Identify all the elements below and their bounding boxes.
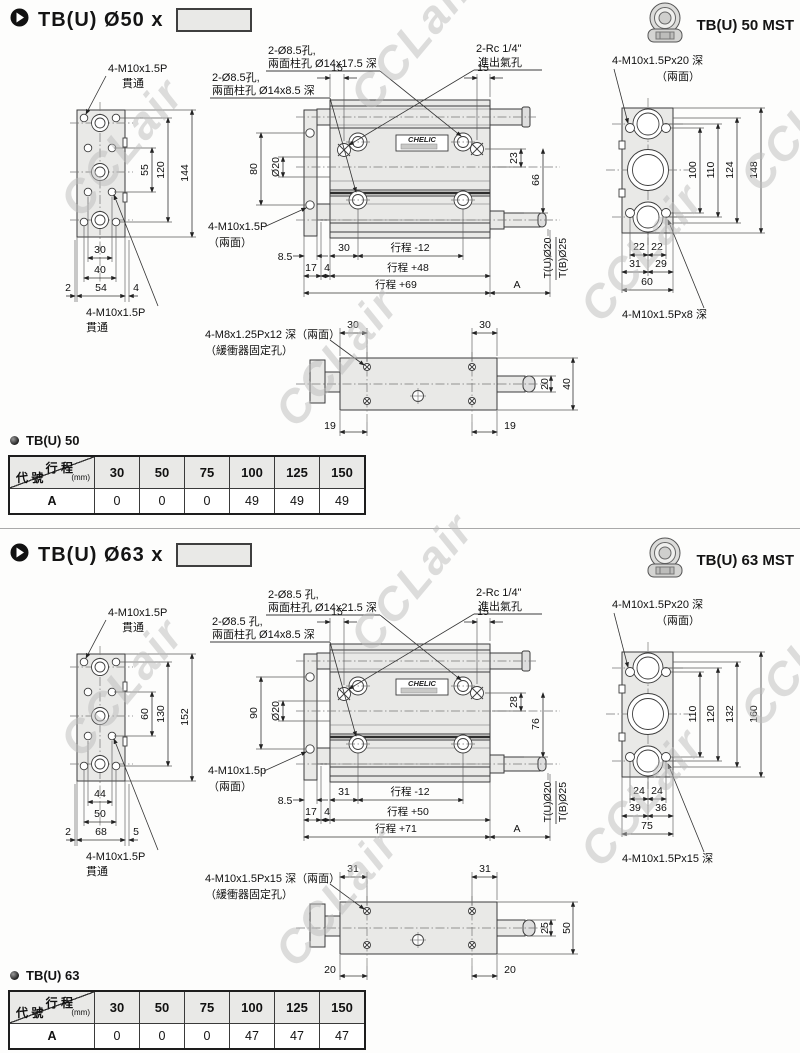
- dim-label: 36: [655, 802, 667, 814]
- dim-label: 50: [94, 808, 106, 820]
- mst-label: TB(U) 63 MST: [697, 552, 795, 569]
- dim-label: 100: [687, 161, 699, 179]
- thread-callout: （緩衝器固定孔）: [205, 343, 293, 357]
- dim-label: 31: [479, 863, 491, 875]
- table-cell: 0: [185, 489, 230, 515]
- hole-callout: 2-Ø8.5孔,: [212, 71, 260, 84]
- rod-diameter-label: T(U)Ø20: [542, 237, 554, 278]
- technical-drawing: 55 120 144 30 40 2 54 4 4-M10x1.5P: [0, 40, 800, 440]
- dim-label: 23: [508, 152, 520, 164]
- bottom-view: 31 31 4-M10x1.5Px15 深（兩面） （緩衝器固定孔） 25 50…: [205, 863, 578, 980]
- thread-callout: 4-M10x1.5Px15 深: [622, 852, 713, 865]
- dim-label: 4: [324, 806, 330, 818]
- product-photo-icon: [641, 537, 689, 584]
- brand-nameplate: CHELIC: [408, 135, 437, 144]
- dim-label: 130: [155, 705, 167, 723]
- dim-label: 行程 +69: [375, 278, 417, 291]
- table-cell: 47: [230, 1024, 275, 1050]
- dim-label: Ø20: [270, 157, 282, 177]
- dim-label: 152: [179, 708, 191, 726]
- stroke-placeholder-box: [176, 543, 252, 567]
- dim-label: 40: [94, 264, 106, 276]
- dim-label: 60: [139, 708, 151, 720]
- dim-label: 22: [633, 241, 645, 253]
- thread-callout: 4-M10x1.5P: [108, 607, 167, 619]
- dim-label: 31: [347, 863, 359, 875]
- table-cell: 49: [230, 489, 275, 515]
- table-title-text: TB(U) 50: [26, 433, 79, 448]
- stroke-code-table: 行 程 (mm) 代 號 30 50 75 100 125 150 A 0 0 …: [8, 990, 366, 1050]
- dim-label: 132: [724, 705, 736, 723]
- table-cell: 49: [275, 489, 320, 515]
- stroke-column-header: 125: [275, 456, 320, 489]
- dim-label: 15: [331, 62, 343, 74]
- right-view: 100 110 124 148 4-M10x1.5Px20 深 （兩面） 22 …: [606, 54, 765, 321]
- table-cell: 49: [320, 489, 366, 515]
- dim-label: 80: [248, 163, 260, 175]
- port-callout: 2-Rc 1/4": [476, 587, 522, 599]
- thread-callout: 貫通: [86, 321, 108, 334]
- dim-label: 31: [629, 258, 641, 270]
- rod-diameter-label: T(U)Ø20: [542, 781, 554, 822]
- dim-label: 44: [94, 788, 106, 800]
- dim-label: 25: [539, 922, 551, 934]
- dim-label: 24: [651, 785, 663, 797]
- dim-label: 66: [530, 174, 542, 186]
- thread-callout: 4-M10x1.5Px20 深: [612, 598, 703, 611]
- dim-label: 54: [95, 282, 107, 294]
- dim-label: 19: [324, 420, 336, 432]
- dim-label: 19: [504, 420, 516, 432]
- table-title-text: TB(U) 63: [26, 968, 79, 983]
- header-stroke-label: 行 程: [46, 459, 73, 476]
- dim-label: 28: [508, 696, 520, 708]
- header-stroke-label: 行 程: [46, 994, 73, 1011]
- dim-label: 30: [479, 319, 491, 331]
- dim-label: 15: [477, 606, 489, 618]
- dim-label: 4: [324, 262, 330, 274]
- dim-label: 5: [133, 826, 139, 838]
- thread-callout: 4-M10x1.5P: [108, 63, 167, 75]
- dim-label: 行程 -12: [390, 785, 429, 798]
- stroke-column-header: 30: [95, 456, 140, 489]
- dim-label: 8.5: [278, 251, 293, 263]
- dim-label: 124: [724, 161, 736, 179]
- dim-label: 15: [331, 606, 343, 618]
- hole-callout: 兩面柱孔 Ø14x17.5 深: [268, 56, 377, 70]
- header-unit-label: (mm): [71, 1008, 90, 1017]
- hole-callout: 兩面柱孔 Ø14x21.5 深: [268, 600, 377, 614]
- dim-label: 120: [155, 161, 167, 179]
- section-header: TB(U) Ø63 x: [10, 543, 252, 567]
- stroke-column-header: 100: [230, 456, 275, 489]
- mst-badge: TB(U) 50 MST: [641, 2, 795, 49]
- dim-label: 20: [324, 964, 336, 976]
- table-diagonal-header: 行 程 (mm) 代 號: [9, 991, 95, 1024]
- dim-label: 20: [504, 964, 516, 976]
- dim-label: 144: [179, 164, 191, 182]
- dim-label: 24: [633, 785, 645, 797]
- table-cell: 0: [95, 1024, 140, 1050]
- dim-label: 17: [305, 262, 317, 274]
- section-title: TB(U) Ø50 x: [38, 9, 163, 32]
- catalog-page: TB(U) Ø50 x TB(U) 50 MST: [0, 0, 800, 1053]
- dim-label: 90: [248, 707, 260, 719]
- dim-label: 120: [705, 705, 717, 723]
- dim-label: 50: [561, 922, 573, 934]
- thread-callout: （兩面）: [208, 780, 252, 793]
- thread-callout: （兩面）: [656, 70, 700, 83]
- table-cell: 47: [275, 1024, 320, 1050]
- table-row: A 0 0 0 49 49 49: [9, 489, 365, 515]
- left-view: 55 120 144 30 40 2 54 4 4-M10x1.5P: [65, 63, 196, 334]
- stroke-column-header: 50: [140, 456, 185, 489]
- dim-label: 15: [477, 62, 489, 74]
- stroke-column-header: 150: [320, 456, 366, 489]
- thread-callout: 4-M10x1.5Px8 深: [622, 308, 707, 321]
- dim-label: 行程 +50: [387, 805, 429, 818]
- dim-label: 29: [655, 258, 667, 270]
- dim-label: 30: [347, 319, 359, 331]
- hole-callout: 2-Ø8.5 孔,: [212, 615, 263, 628]
- table-cell: 47: [320, 1024, 366, 1050]
- product-section: TB(U) Ø50 x TB(U) 50 MST: [0, 0, 800, 535]
- dim-label: 30: [94, 244, 106, 256]
- mst-label: TB(U) 50 MST: [697, 17, 795, 34]
- table-title: TB(U) 50: [10, 433, 79, 448]
- brand-nameplate: CHELIC: [408, 679, 437, 688]
- table-header-row: 行 程 (mm) 代 號 30 50 75 100 125 150: [9, 991, 365, 1024]
- thread-callout: 4-M10x1.5p: [208, 765, 266, 777]
- header-code-label: 代 號: [16, 469, 43, 486]
- thread-callout: 貫通: [86, 865, 108, 878]
- product-photo-icon: [641, 2, 689, 49]
- section-marker-icon: [10, 8, 29, 32]
- dim-label: 60: [641, 276, 653, 288]
- dim-label: 110: [705, 161, 717, 178]
- stroke-column-header: 50: [140, 991, 185, 1024]
- dim-label: Ø20: [270, 701, 282, 721]
- dim-label: 110: [687, 705, 699, 722]
- thread-callout: 4-M10x1.5Px15 深（兩面）: [205, 872, 340, 885]
- dim-label: 4: [133, 282, 139, 294]
- dim-label: 行程 +48: [387, 261, 429, 274]
- dim-label: 17: [305, 806, 317, 818]
- section-header: TB(U) Ø50 x: [10, 8, 252, 32]
- rod-diameter-label: T(B)Ø25: [557, 238, 569, 278]
- thread-callout: （緩衝器固定孔）: [205, 887, 293, 901]
- thread-callout: （兩面）: [208, 236, 252, 249]
- stroke-column-header: 125: [275, 991, 320, 1024]
- product-section: TB(U) Ø63 x TB(U) 63 MST: [0, 535, 800, 1053]
- section-divider: [0, 528, 800, 529]
- stroke-column-header: 150: [320, 991, 366, 1024]
- bullet-icon: [10, 436, 19, 445]
- stroke-code-table: 行 程 (mm) 代 號 30 50 75 100 125 150 A 0 0 …: [8, 455, 366, 515]
- bullet-icon: [10, 971, 19, 980]
- rod-diameter-label: T(B)Ø25: [557, 782, 569, 822]
- dim-label: 160: [748, 705, 760, 723]
- dim-label: 148: [748, 161, 760, 179]
- front-view: CHELIC 2-Ø8.5 孔, 兩面柱孔 Ø14x21.5 深 2-Ø8.5 …: [208, 587, 569, 841]
- dim-label: 2: [65, 282, 71, 294]
- dim-label: 39: [629, 802, 641, 814]
- table-diagonal-header: 行 程 (mm) 代 號: [9, 456, 95, 489]
- dim-label: 行程 -12: [390, 241, 429, 254]
- thread-callout: （兩面）: [656, 614, 700, 627]
- front-view: CHELIC 2-Ø8.5孔, 兩面柱孔 Ø14x17.5 深 2-Ø8.5孔,…: [208, 43, 569, 297]
- dim-label: 40: [561, 378, 573, 390]
- dim-label: 76: [530, 718, 542, 730]
- hole-callout: 2-Ø8.5孔,: [268, 44, 316, 57]
- dim-label: 8.5: [278, 795, 293, 807]
- dim-label: 行程 +71: [375, 822, 417, 835]
- thread-callout: 4-M8x1.25Px12 深（兩面）: [205, 328, 340, 341]
- dim-label: 2: [65, 826, 71, 838]
- port-callout: 2-Rc 1/4": [476, 43, 522, 55]
- section-title: TB(U) Ø63 x: [38, 544, 163, 567]
- table-header-row: 行 程 (mm) 代 號 30 50 75 100 125 150: [9, 456, 365, 489]
- header-code-label: 代 號: [16, 1004, 43, 1021]
- dim-label: 55: [139, 164, 151, 176]
- thread-callout: 貫通: [122, 77, 144, 90]
- dim-label: 22: [651, 241, 663, 253]
- row-label: A: [9, 489, 95, 515]
- bottom-view: 30 30 4-M8x1.25Px12 深（兩面） （緩衝器固定孔） 20 40…: [205, 319, 578, 436]
- thread-callout: 4-M10x1.5P: [86, 307, 145, 319]
- section-marker-icon: [10, 543, 29, 567]
- table-cell: 0: [185, 1024, 230, 1050]
- row-label: A: [9, 1024, 95, 1050]
- thread-callout: 4-M10x1.5P: [208, 221, 267, 233]
- dim-label: 31: [338, 786, 350, 798]
- technical-drawing: 60 130 152 44 50 2 68 5 4-M10x1.5P: [0, 584, 800, 984]
- hole-callout: 2-Ø8.5 孔,: [268, 588, 319, 601]
- mst-badge: TB(U) 63 MST: [641, 537, 795, 584]
- left-view: 60 130 152 44 50 2 68 5 4-M10x1.5P: [65, 607, 196, 878]
- table-cell: 0: [140, 489, 185, 515]
- dim-label: A: [513, 823, 520, 835]
- thread-callout: 4-M10x1.5Px20 深: [612, 54, 703, 67]
- dim-label: 68: [95, 826, 107, 838]
- dim-label: 30: [338, 242, 350, 254]
- stroke-column-header: 30: [95, 991, 140, 1024]
- dim-label: 75: [641, 820, 653, 832]
- stroke-column-header: 100: [230, 991, 275, 1024]
- table-row: A 0 0 0 47 47 47: [9, 1024, 365, 1050]
- dim-label: A: [513, 279, 520, 291]
- thread-callout: 貫通: [122, 621, 144, 634]
- hole-callout: 兩面柱孔 Ø14x8.5 深: [212, 627, 315, 641]
- table-title: TB(U) 63: [10, 968, 79, 983]
- hole-callout: 兩面柱孔 Ø14x8.5 深: [212, 83, 315, 97]
- dim-label: 20: [539, 378, 551, 390]
- thread-callout: 4-M10x1.5P: [86, 851, 145, 863]
- table-cell: 0: [95, 489, 140, 515]
- stroke-column-header: 75: [185, 991, 230, 1024]
- stroke-placeholder-box: [176, 8, 252, 32]
- table-cell: 0: [140, 1024, 185, 1050]
- stroke-column-header: 75: [185, 456, 230, 489]
- header-unit-label: (mm): [71, 473, 90, 482]
- right-view: 110 120 132 160 4-M10x1.5Px20 深 （兩面） 24 …: [606, 598, 765, 865]
